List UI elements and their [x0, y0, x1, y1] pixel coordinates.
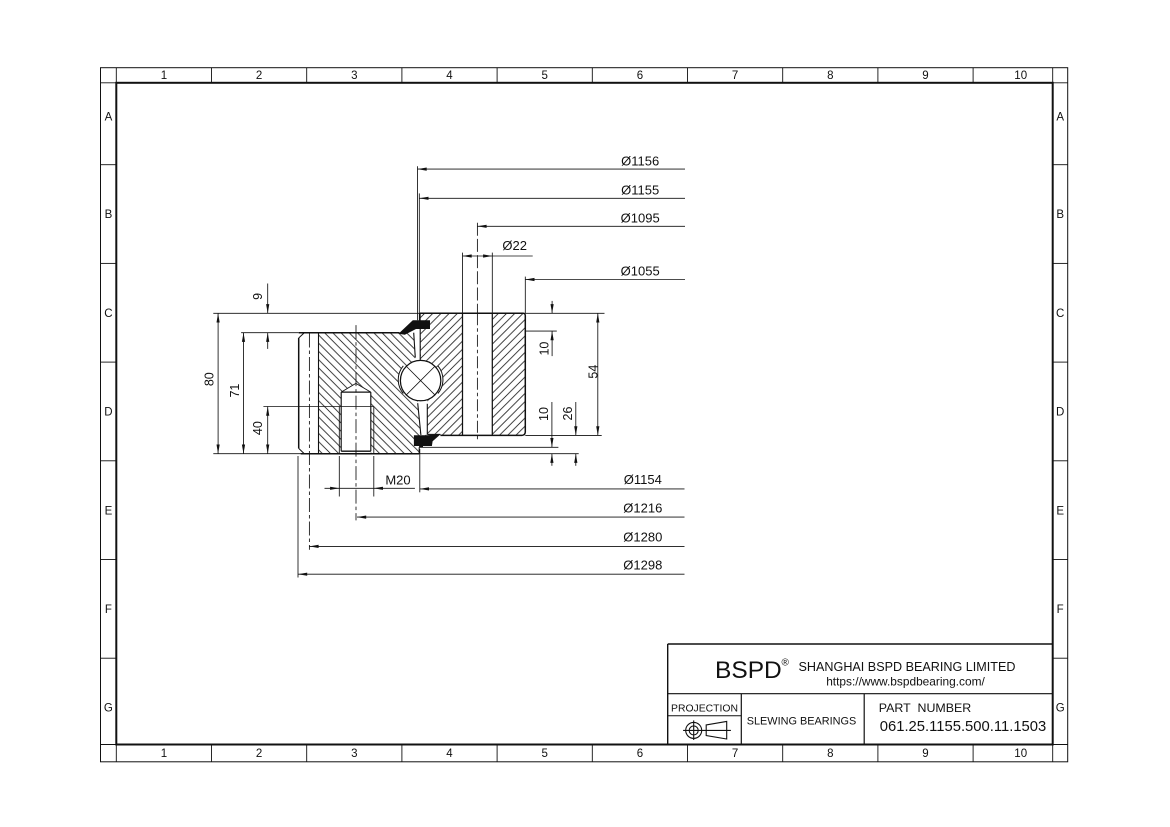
svg-text:F: F — [105, 604, 112, 616]
svg-text:061.25.1155.500.11.1503: 061.25.1155.500.11.1503 — [880, 719, 1047, 735]
svg-text:https://www.bspdbearing.com/: https://www.bspdbearing.com/ — [826, 675, 985, 689]
svg-text:Ø1156: Ø1156 — [621, 153, 659, 168]
svg-text:M20: M20 — [385, 472, 410, 487]
svg-text:71: 71 — [228, 384, 242, 398]
svg-text:G: G — [1056, 703, 1065, 715]
svg-text:1: 1 — [161, 70, 167, 82]
svg-text:B: B — [105, 209, 113, 221]
svg-text:9: 9 — [251, 293, 265, 300]
svg-text:®: ® — [782, 658, 790, 669]
svg-text:SHANGHAI BSPD BEARING LIMITED: SHANGHAI BSPD BEARING LIMITED — [799, 660, 1016, 674]
svg-text:D: D — [1056, 407, 1064, 419]
svg-text:10: 10 — [1014, 70, 1027, 82]
svg-text:5: 5 — [541, 70, 547, 82]
svg-text:E: E — [105, 505, 113, 517]
svg-text:G: G — [104, 703, 113, 715]
svg-text:2: 2 — [256, 748, 262, 760]
svg-text:D: D — [104, 407, 112, 419]
svg-text:A: A — [1056, 111, 1064, 123]
svg-text:6: 6 — [637, 70, 643, 82]
svg-text:Ø22: Ø22 — [502, 238, 527, 253]
svg-text:26: 26 — [561, 407, 575, 421]
svg-text:10: 10 — [537, 342, 551, 356]
svg-text:Ø1216: Ø1216 — [623, 500, 662, 515]
svg-text:9: 9 — [922, 748, 928, 760]
svg-text:40: 40 — [251, 421, 265, 435]
svg-text:BSPD: BSPD — [715, 657, 782, 684]
svg-text:1: 1 — [161, 748, 167, 760]
svg-text:PART NUMBER: PART NUMBER — [879, 701, 972, 715]
svg-text:SLEWING BEARINGS: SLEWING BEARINGS — [747, 715, 857, 727]
svg-text:B: B — [1056, 209, 1064, 221]
svg-text:3: 3 — [351, 748, 357, 760]
svg-text:Ø1280: Ø1280 — [623, 530, 662, 545]
svg-text:54: 54 — [586, 365, 600, 379]
svg-text:C: C — [104, 308, 112, 320]
svg-text:8: 8 — [827, 70, 833, 82]
svg-text:7: 7 — [732, 748, 738, 760]
svg-text:80: 80 — [203, 372, 217, 386]
svg-text:Ø1095: Ø1095 — [621, 211, 660, 226]
svg-text:Ø1298: Ø1298 — [623, 558, 662, 573]
svg-text:PROJECTION: PROJECTION — [671, 704, 738, 715]
svg-text:C: C — [1056, 308, 1064, 320]
svg-text:Ø1055: Ø1055 — [621, 264, 660, 279]
svg-text:4: 4 — [446, 748, 453, 760]
svg-text:A: A — [105, 111, 113, 123]
svg-text:10: 10 — [1014, 748, 1027, 760]
svg-text:F: F — [1057, 604, 1064, 616]
svg-text:3: 3 — [351, 70, 357, 82]
svg-text:9: 9 — [922, 70, 928, 82]
svg-text:10: 10 — [537, 407, 551, 421]
svg-text:5: 5 — [541, 748, 547, 760]
svg-text:8: 8 — [827, 748, 833, 760]
svg-text:4: 4 — [446, 70, 453, 82]
svg-text:2: 2 — [256, 70, 262, 82]
svg-text:7: 7 — [732, 70, 738, 82]
svg-text:Ø1154: Ø1154 — [624, 472, 662, 487]
svg-text:E: E — [1056, 505, 1064, 517]
svg-text:Ø1155: Ø1155 — [621, 183, 659, 198]
svg-text:6: 6 — [637, 748, 643, 760]
